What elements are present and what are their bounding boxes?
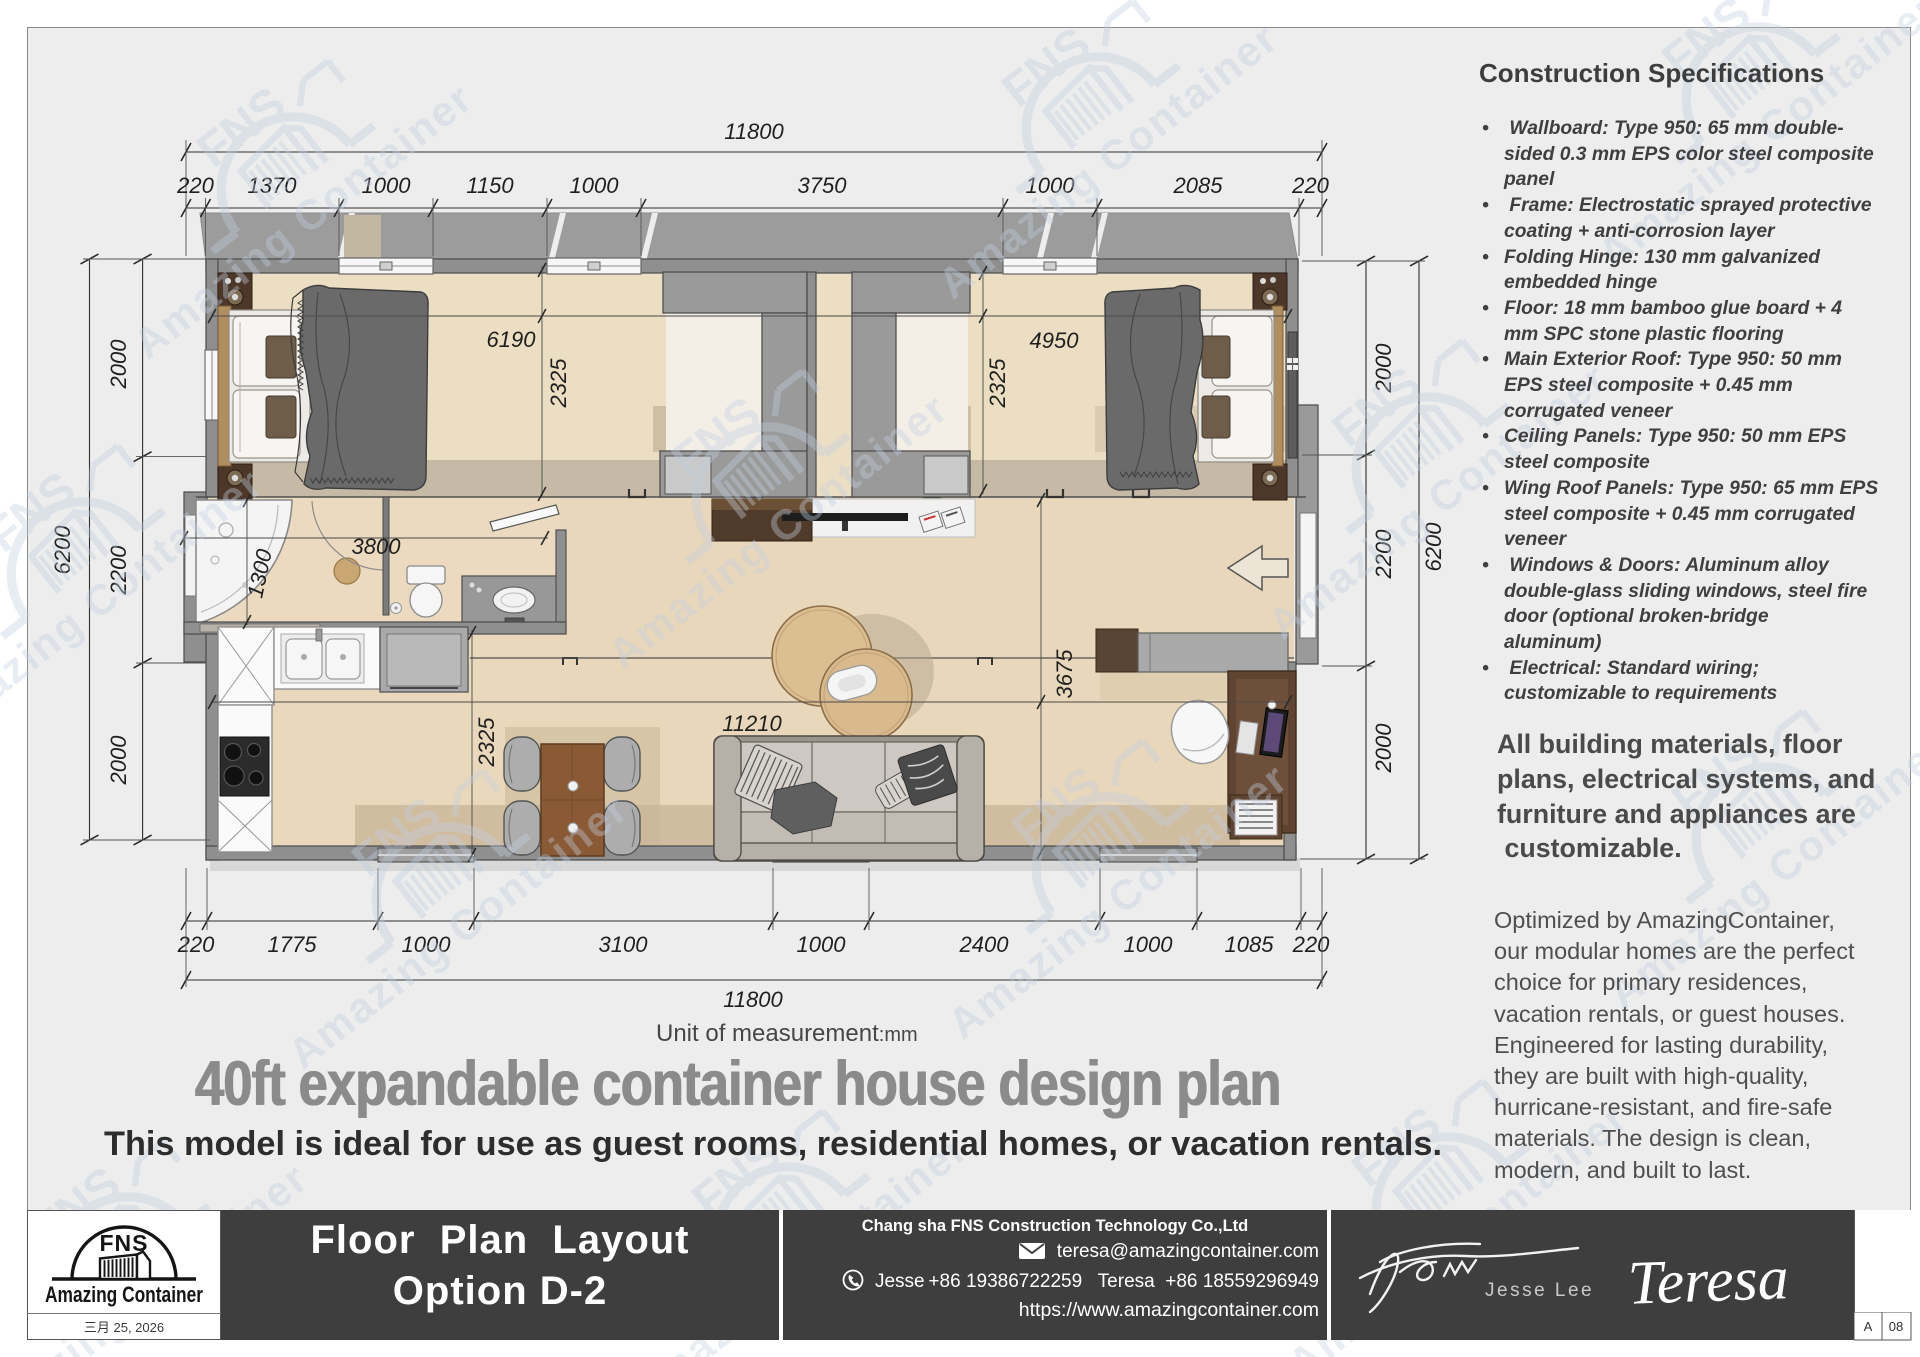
- svg-text:2085: 2085: [1173, 173, 1224, 198]
- svg-text:4950: 4950: [1030, 328, 1080, 353]
- svg-text:2325: 2325: [474, 717, 499, 768]
- svg-text:3800: 3800: [352, 534, 402, 559]
- svg-text:6190: 6190: [487, 327, 537, 352]
- svg-text:220: 220: [176, 173, 214, 198]
- svg-text:1150: 1150: [466, 173, 514, 198]
- svg-text:2325: 2325: [985, 358, 1010, 409]
- svg-text:3675: 3675: [1052, 649, 1077, 699]
- svg-text:Amazing Container: Amazing Container: [45, 1282, 203, 1307]
- svg-text:2325: 2325: [546, 358, 571, 409]
- svg-text:2000: 2000: [106, 735, 131, 786]
- svg-text:Teresa: Teresa: [1627, 1245, 1790, 1318]
- svg-text:3100: 3100: [599, 932, 649, 957]
- svg-text:220: 220: [1291, 173, 1329, 198]
- svg-text:3750: 3750: [798, 173, 848, 198]
- svg-text:220: 220: [1292, 932, 1330, 957]
- svg-text:1000: 1000: [797, 932, 847, 957]
- svg-text:FNS: FNS: [100, 1230, 149, 1256]
- svg-text:1000: 1000: [570, 173, 620, 198]
- svg-text:1000: 1000: [1124, 932, 1174, 957]
- svg-text:Jesse Lee: Jesse Lee: [1485, 1280, 1594, 1301]
- svg-text:11210: 11210: [722, 711, 782, 736]
- svg-text:2000: 2000: [106, 339, 131, 390]
- svg-text:08: 08: [1889, 1319, 1903, 1334]
- svg-text:1775: 1775: [268, 932, 318, 957]
- svg-text:A: A: [1864, 1319, 1873, 1334]
- svg-text:1085: 1085: [1225, 932, 1275, 957]
- svg-text:11800: 11800: [724, 119, 784, 144]
- svg-text:2400: 2400: [959, 932, 1010, 957]
- svg-text:220: 220: [177, 932, 215, 957]
- svg-text:11800: 11800: [723, 987, 783, 1012]
- svg-text:2000: 2000: [1371, 723, 1396, 774]
